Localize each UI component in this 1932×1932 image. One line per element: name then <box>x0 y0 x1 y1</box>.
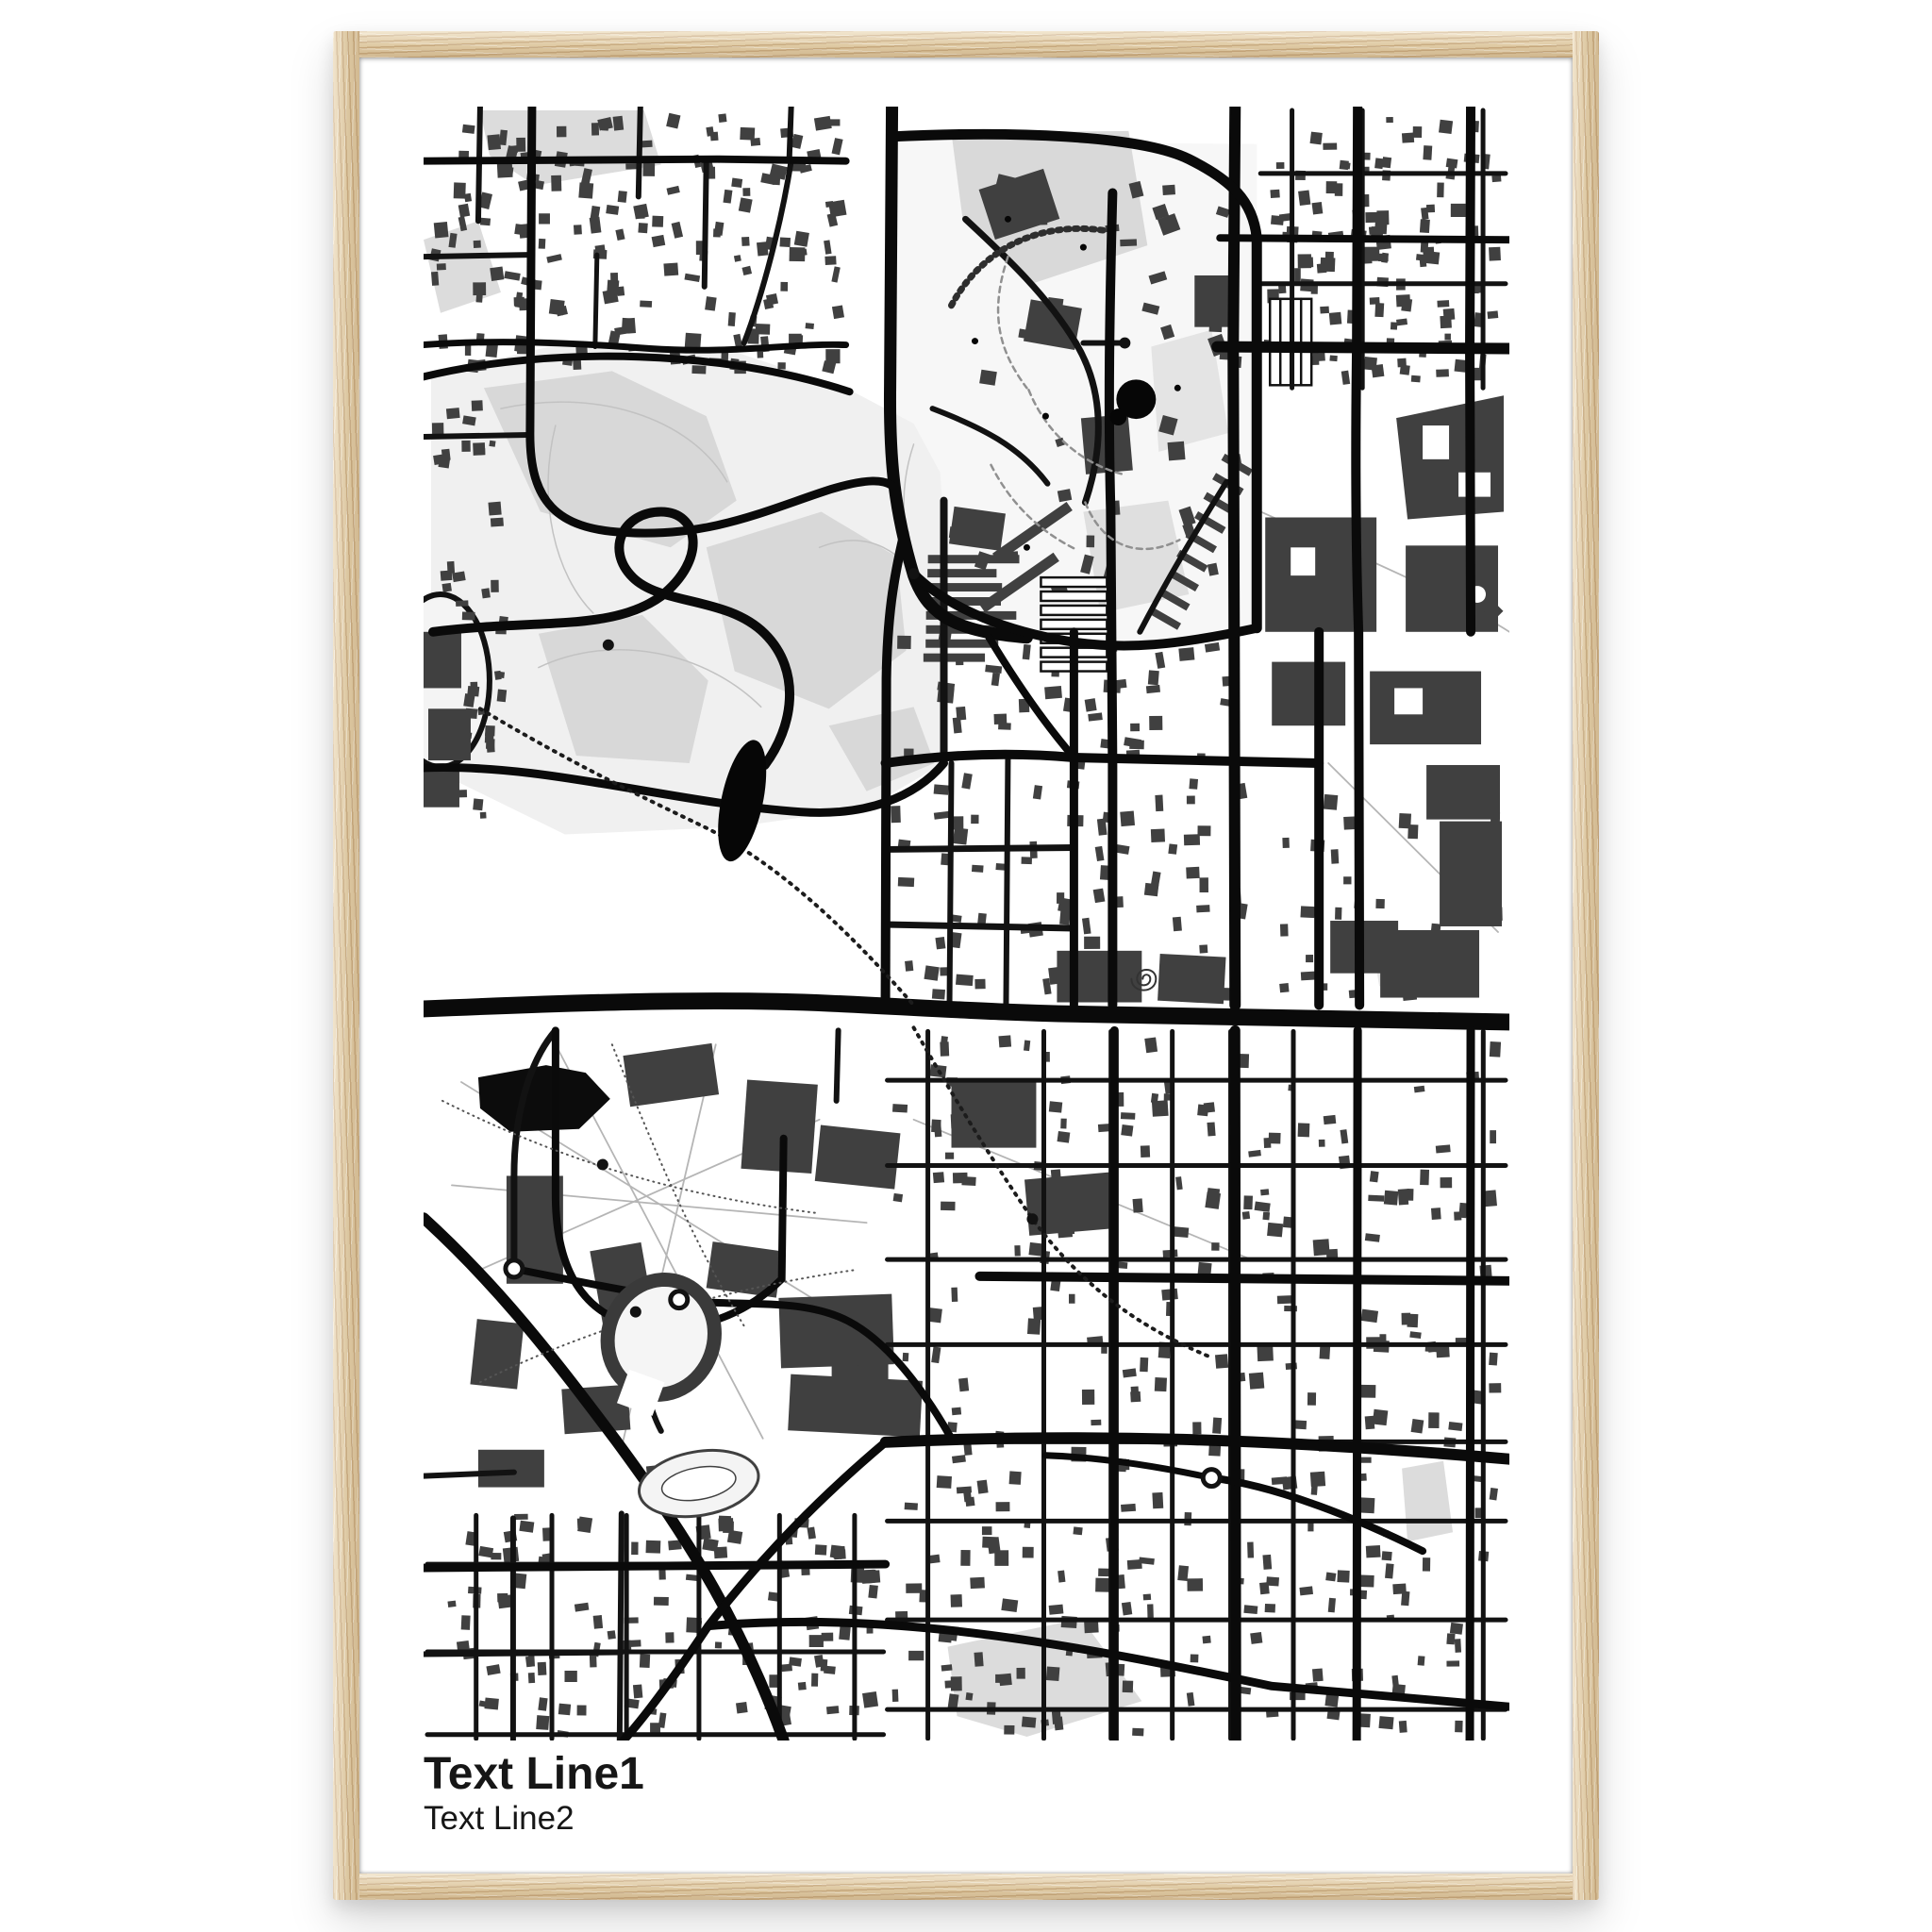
frame-rail-left <box>333 31 359 1900</box>
poster-caption: Text Line1 Text Line2 <box>424 1751 644 1838</box>
city-map-graphic <box>424 107 1509 1740</box>
map-poster: Text Line1 Text Line2 <box>359 58 1573 1874</box>
caption-line2: Text Line2 <box>424 1799 644 1838</box>
caption-line1: Text Line1 <box>424 1751 644 1799</box>
city-map-svg <box>424 107 1509 1740</box>
frame-rail-right <box>1573 31 1599 1900</box>
frame-rail-top <box>333 31 1599 58</box>
frame-rail-bottom <box>333 1874 1599 1900</box>
product-mockup-scene: Text Line1 Text Line2 <box>0 0 1932 1932</box>
wood-picture-frame: Text Line1 Text Line2 <box>333 31 1599 1900</box>
